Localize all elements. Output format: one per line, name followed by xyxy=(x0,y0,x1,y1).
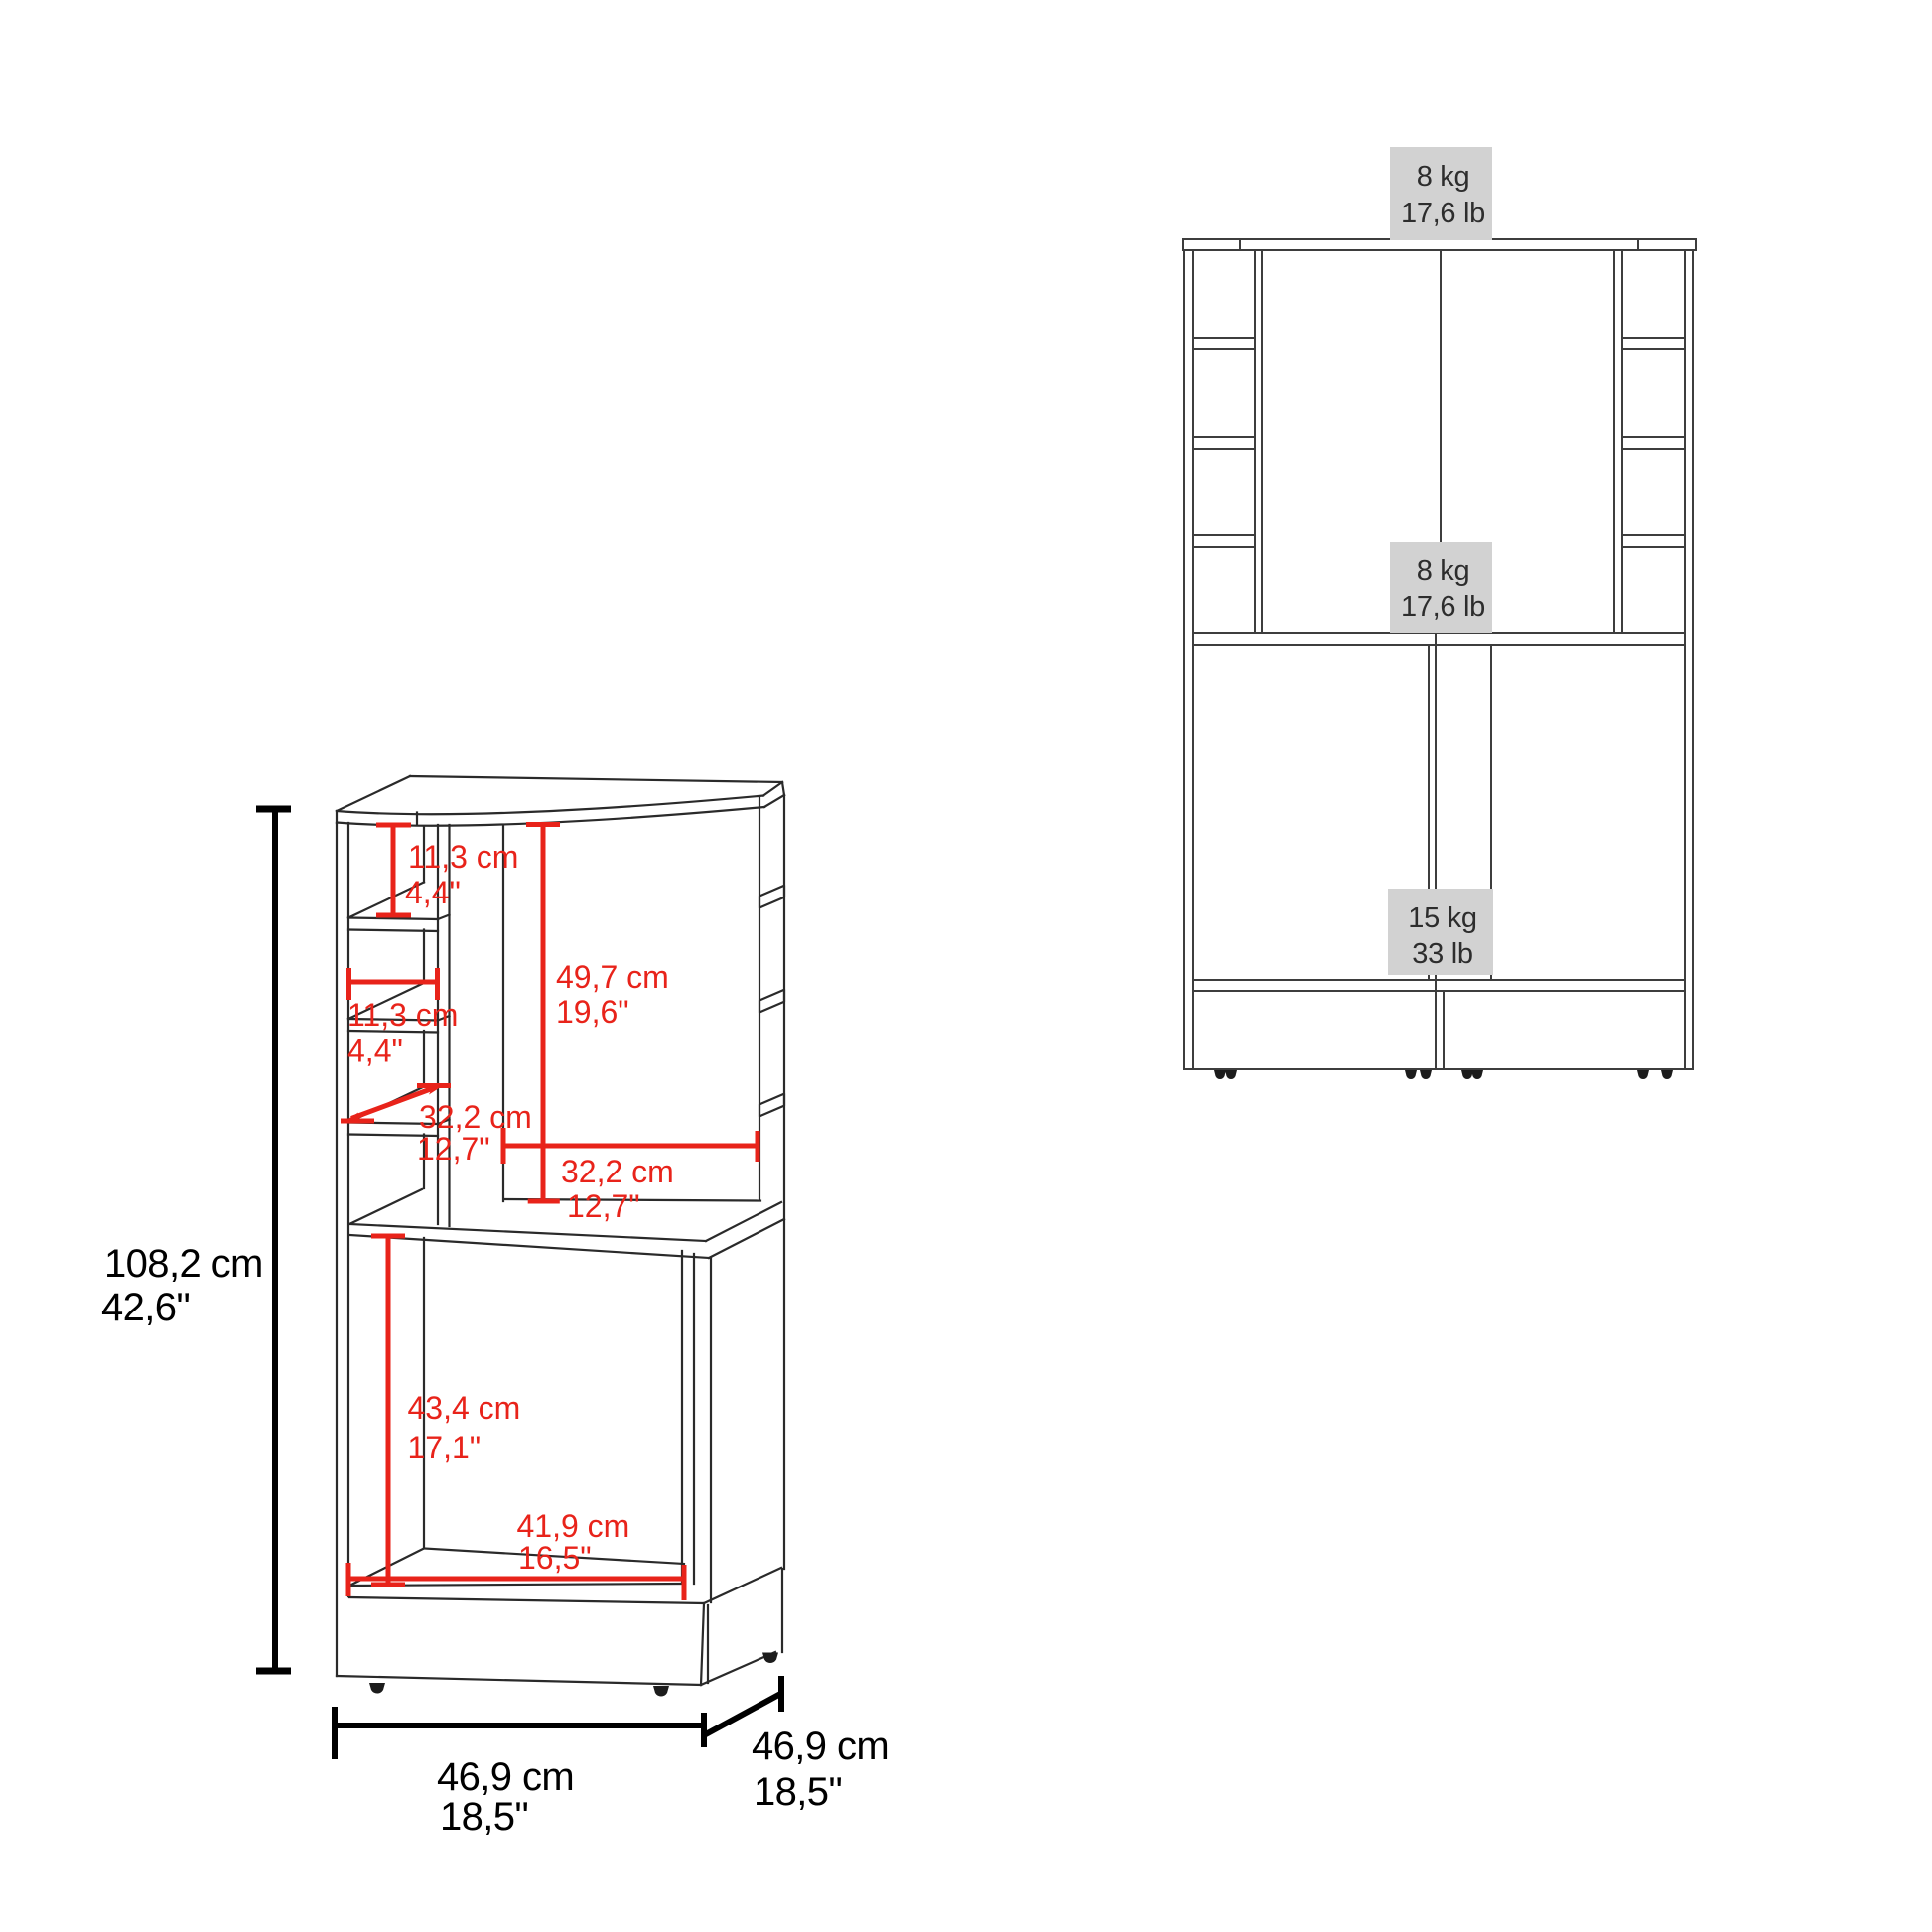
svg-text:49,7 cm: 49,7 cm xyxy=(556,959,669,995)
svg-text:108,2 cm: 108,2 cm xyxy=(104,1242,263,1286)
svg-text:4,4": 4,4" xyxy=(347,1034,403,1069)
svg-text:8 kg: 8 kg xyxy=(1417,555,1470,587)
svg-text:12,7": 12,7" xyxy=(417,1131,490,1167)
svg-text:8 kg: 8 kg xyxy=(1417,161,1470,193)
svg-text:32,2 cm: 32,2 cm xyxy=(561,1154,674,1189)
svg-text:43,4 cm: 43,4 cm xyxy=(408,1390,521,1426)
svg-text:12,7": 12,7" xyxy=(567,1188,640,1224)
svg-text:41,9 cm: 41,9 cm xyxy=(517,1508,630,1544)
svg-text:4,4": 4,4" xyxy=(405,875,461,910)
svg-text:32,2 cm: 32,2 cm xyxy=(419,1099,532,1135)
svg-text:33 lb: 33 lb xyxy=(1412,938,1472,970)
svg-text:46,9 cm: 46,9 cm xyxy=(437,1755,574,1799)
svg-text:17,6 lb: 17,6 lb xyxy=(1401,591,1485,622)
svg-text:42,6": 42,6" xyxy=(101,1286,190,1329)
svg-text:46,9 cm: 46,9 cm xyxy=(752,1725,889,1768)
svg-text:19,6": 19,6" xyxy=(556,994,629,1030)
svg-text:16,5": 16,5" xyxy=(518,1540,592,1576)
svg-text:15 kg: 15 kg xyxy=(1408,902,1476,934)
svg-text:18,5": 18,5" xyxy=(754,1770,842,1814)
svg-text:18,5": 18,5" xyxy=(440,1795,528,1839)
svg-text:17,6 lb: 17,6 lb xyxy=(1401,198,1485,229)
svg-text:17,1": 17,1" xyxy=(408,1430,482,1465)
svg-text:11,3 cm: 11,3 cm xyxy=(408,839,518,875)
svg-text:11,3 cm: 11,3 cm xyxy=(347,997,458,1033)
